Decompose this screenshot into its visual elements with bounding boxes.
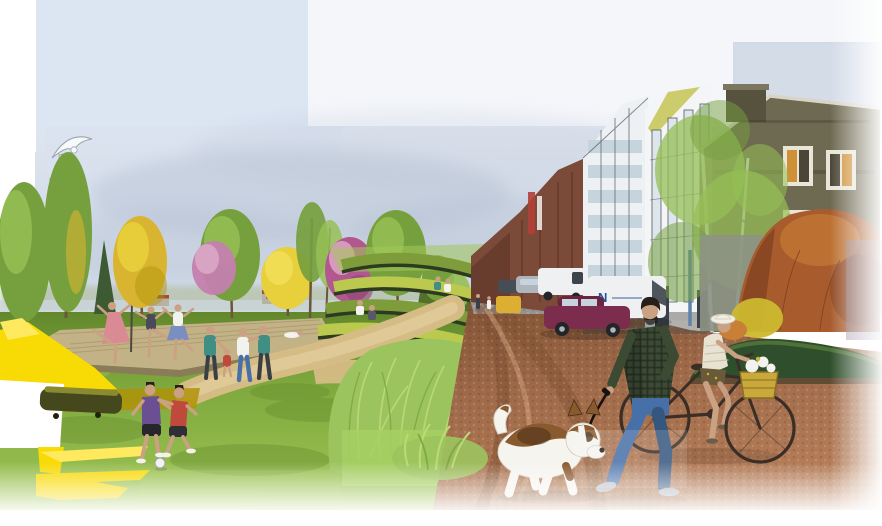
photomontage-canvas: N (0, 0, 882, 526)
facade-banner (528, 192, 535, 234)
yellow-van (496, 296, 521, 313)
